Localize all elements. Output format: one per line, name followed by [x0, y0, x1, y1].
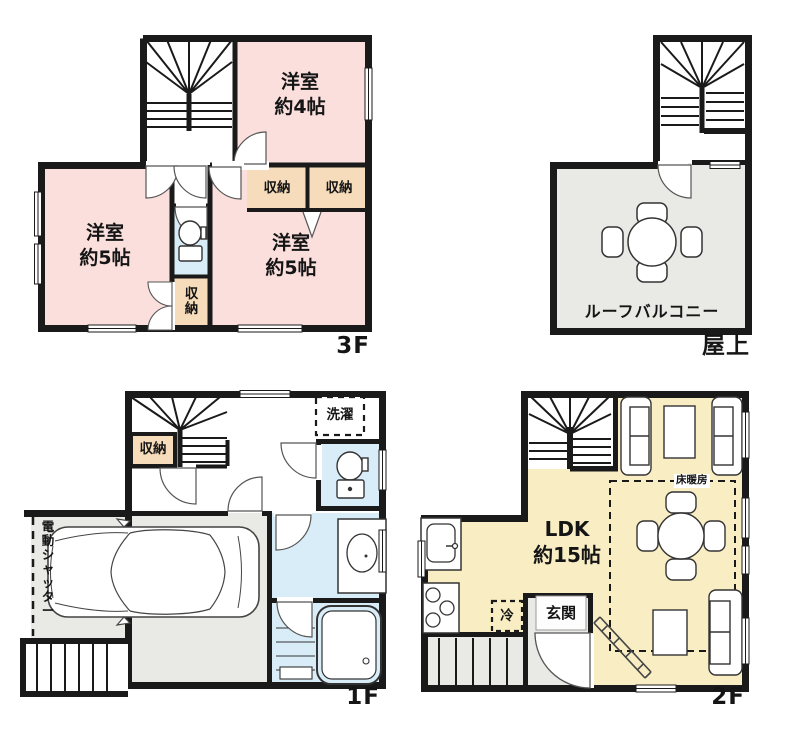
laundry-label: 洗濯: [310, 407, 370, 425]
floor-label-3f: 3F: [300, 332, 370, 362]
floor-label-roof: 屋上: [650, 332, 750, 362]
room-label-line: 約15帖: [496, 542, 638, 568]
car-icon: [48, 519, 259, 625]
shutter-label: 電動シャッター: [40, 520, 56, 618]
closet-label-b: 収納: [309, 180, 369, 198]
closet-label-a: 収納: [247, 180, 307, 198]
room-label-bedroom5-left: 洋室 約5帖: [44, 221, 166, 270]
stove-icon: [423, 583, 459, 633]
room-label-ldk: LDK 約15帖: [496, 516, 638, 568]
room-label-line: 約5帖: [44, 246, 166, 271]
floor-label-1f: 1F: [310, 683, 380, 713]
entry-steps-icon: [23, 641, 128, 694]
kitchen-sink-icon: [421, 518, 461, 570]
closet-label-c: 収納: [184, 287, 199, 317]
floor-heating-label: 床暖房: [674, 474, 710, 488]
room-label-line: LDK: [496, 516, 638, 542]
floorplan-sheet: 洋室 約4帖 洋室 約5帖 洋室 約5帖 収納 収納 収納 3F ルーフバルコニ…: [0, 0, 800, 739]
side-table-icon: [653, 610, 687, 655]
window-roof: [710, 162, 740, 169]
balcony-label: ルーフバルコニー: [552, 302, 752, 323]
floorplan-drawing: [0, 0, 800, 739]
fridge-label: 冷: [492, 608, 522, 626]
sofa-icon-bottom: [709, 590, 742, 675]
floor-label-2f: 2F: [675, 683, 745, 713]
room-label-line: 洋室: [239, 70, 361, 95]
stair-landing-wall: [570, 466, 618, 472]
room-label-line: 約5帖: [230, 256, 352, 281]
room-label-line: 約4帖: [239, 95, 361, 120]
room-label-line: 洋室: [44, 221, 166, 246]
floor-plan-1f: [23, 391, 386, 695]
floor-plan-roof: [553, 35, 752, 332]
entrance-label: 玄関: [531, 604, 591, 624]
room-label-bedroom5-right: 洋室 約5帖: [230, 231, 352, 280]
room-label-bedroom4: 洋室 約4帖: [239, 70, 361, 119]
closet-label-1f: 収納: [123, 441, 183, 459]
room-label-line: 洋室: [230, 231, 352, 256]
